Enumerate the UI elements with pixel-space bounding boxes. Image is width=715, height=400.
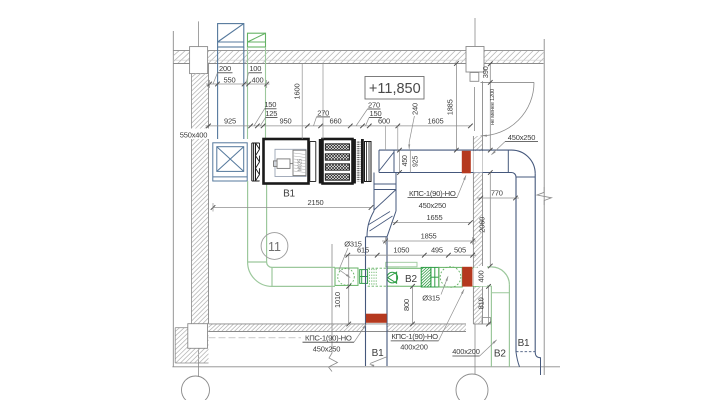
svg-text:В1: В1 <box>372 348 384 359</box>
svg-text:не менее 1200: не менее 1200 <box>490 89 496 125</box>
svg-text:2150: 2150 <box>308 198 324 207</box>
svg-text:450x250: 450x250 <box>508 133 535 142</box>
svg-text:В1: В1 <box>283 189 295 200</box>
svg-text:770: 770 <box>491 189 503 198</box>
svg-text:550x400: 550x400 <box>180 130 207 139</box>
svg-text:450x250: 450x250 <box>313 345 340 354</box>
svg-text:125: 125 <box>265 109 277 118</box>
svg-text:400x200: 400x200 <box>400 342 427 351</box>
svg-text:495: 495 <box>431 246 443 255</box>
svg-text:660: 660 <box>330 116 342 125</box>
svg-text:1655: 1655 <box>427 213 443 222</box>
svg-text:1885: 1885 <box>445 99 454 115</box>
svg-text:150: 150 <box>370 109 382 118</box>
svg-text:505: 505 <box>454 246 466 255</box>
svg-text:КПС-1(90)-НО: КПС-1(90)-НО <box>305 333 352 342</box>
svg-text:390: 390 <box>481 66 490 78</box>
svg-text:925: 925 <box>224 116 236 125</box>
svg-text:Ø315: Ø315 <box>344 240 362 249</box>
svg-text:В2: В2 <box>405 274 417 285</box>
svg-text:450: 450 <box>402 155 409 166</box>
svg-text:400x200: 400x200 <box>452 347 479 356</box>
svg-text:1010: 1010 <box>333 292 342 308</box>
svg-text:810: 810 <box>477 297 486 309</box>
svg-text:400: 400 <box>476 271 485 283</box>
svg-text:150: 150 <box>264 100 276 109</box>
svg-text:2060: 2060 <box>478 217 487 233</box>
svg-text:1050: 1050 <box>393 246 409 255</box>
svg-text:200: 200 <box>219 64 231 73</box>
svg-text:925: 925 <box>412 156 419 167</box>
svg-text:240: 240 <box>410 103 419 115</box>
svg-text:1605: 1605 <box>428 116 444 125</box>
svg-text:400: 400 <box>252 75 264 84</box>
svg-text:КПС-1(90)-НО: КПС-1(90)-НО <box>409 189 456 198</box>
svg-text:В1: В1 <box>518 338 530 349</box>
svg-text:+11,850: +11,850 <box>369 81 421 97</box>
svg-text:М025: М025 <box>297 159 303 171</box>
svg-text:КПС-1(90)-НО: КПС-1(90)-НО <box>391 332 438 341</box>
svg-text:950: 950 <box>280 116 292 125</box>
svg-text:800: 800 <box>402 299 411 311</box>
svg-text:100: 100 <box>249 64 261 73</box>
svg-text:1855: 1855 <box>421 231 437 240</box>
svg-text:В2: В2 <box>494 349 506 360</box>
svg-text:450x250: 450x250 <box>419 201 446 210</box>
svg-text:11: 11 <box>268 240 281 254</box>
svg-text:550: 550 <box>224 75 236 84</box>
svg-text:1600: 1600 <box>293 84 302 100</box>
svg-text:Ø315: Ø315 <box>422 293 440 302</box>
